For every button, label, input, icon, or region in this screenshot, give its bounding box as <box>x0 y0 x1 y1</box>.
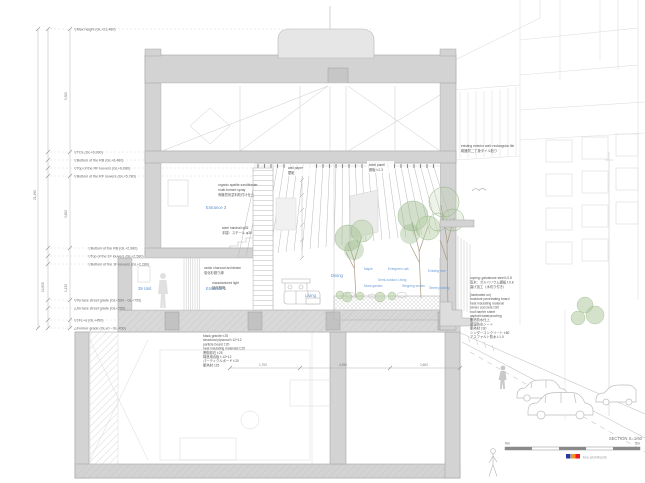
level-former-grade: △Former grade (GL±0 - GL-450) <box>74 327 126 331</box>
ann-louver-right-2: 鋼板 t:2.3 <box>369 167 383 172</box>
dim-total-height: 21,480 <box>33 190 37 200</box>
ann-coping-1: coping: galvalume steel t:0.8 <box>470 276 512 280</box>
background-buildings <box>455 0 645 420</box>
dim-bottom-1: 1,700 <box>259 363 267 367</box>
room-living: Living <box>305 293 317 298</box>
ann-coping-3: 曲げ加工（水切り付き） <box>470 284 506 289</box>
level-top-1f-louvers: ▽Top of the 1F louvers (GL+2,580) <box>88 255 144 259</box>
room-39unit: 39 Unit <box>138 286 152 291</box>
firm-logo <box>566 454 580 459</box>
dim-seg-mid: 3,600 <box>64 210 68 218</box>
ann-louver-left-1: wall paper <box>288 166 304 170</box>
room-entrance3: Entrance 3 <box>206 205 227 210</box>
level-bottom-2f-rb: ▽Bottom of the RB (GL+2,980) <box>88 247 137 251</box>
roof-slab <box>145 55 456 83</box>
garden-label-4: Moss garden <box>364 284 383 288</box>
ann-architrave-1: cedar charcoal architrave <box>204 266 241 270</box>
floor-slab-3f <box>145 151 456 163</box>
level-max-height: ▽Max height (GL+21,480) <box>74 28 116 32</box>
garden-label-3: Semi-outdoor Living <box>378 278 407 282</box>
level-bottom-rf-louvers: ▽Bottom of the RF louvers (GL+5,780) <box>74 175 136 179</box>
dim-left-total: 14,850 <box>41 282 45 292</box>
firm-credit: tna architects <box>583 455 607 460</box>
dim-bottom-2: 4,550 <box>339 363 347 367</box>
basement-level <box>75 332 460 478</box>
garden-label-7: Street planting <box>429 286 450 290</box>
building-section <box>118 6 604 332</box>
roof-vault <box>278 29 374 58</box>
level-tol: ▽TOL (GL+6,990) <box>74 151 103 155</box>
ann-floor-spec-8: 断熱材 t:25 <box>203 362 219 367</box>
level-1fl-alpha: ▽1FL+α (GL+450) <box>74 319 103 323</box>
ann-coping-2: 笠木：ガルバリウム鋼板 t:0.8 <box>470 280 514 285</box>
third-floor-room <box>161 83 440 151</box>
dim-seg-low: 1,130 <box>64 284 68 292</box>
ann-handrail-2: 手摺：スチール φ35 <box>222 230 252 235</box>
level-top-rf-louvers: ▽Top of the RF louvers (GL+6,080) <box>74 167 130 171</box>
roadside-bushes <box>571 297 604 325</box>
dim-bottom-3: 2,600 <box>420 363 428 367</box>
ann-architrave-2: 炭化杉廻り縁 <box>204 270 224 275</box>
bird-icon <box>472 189 486 191</box>
room-dining: Dining <box>331 273 344 278</box>
level-bottom-1f-louvers: ▽Bottom of the 1F louvers (GL+2,280) <box>88 263 149 267</box>
ann-light-1: manufactured light <box>212 281 239 285</box>
footer: SECTION S=1/60 0m 5m tna architects <box>505 436 643 460</box>
ann-wall-finish-1: organic apatite sandblaster <box>218 183 258 187</box>
street-section <box>456 331 645 477</box>
ann-louver-right-1: steel panel <box>369 163 385 167</box>
scale-bar <box>505 447 640 450</box>
car-right <box>596 385 636 405</box>
canopy-ledge <box>440 220 474 227</box>
level-terrace-grade-v: ▽Terrace street grade (GL+500 - GL+750) <box>74 299 141 303</box>
scale-five: 5m <box>635 442 640 446</box>
garden-label-5: Stepping stones <box>402 284 425 288</box>
furniture <box>282 279 320 304</box>
garden-label-2: Evergreen oak <box>388 267 409 271</box>
level-terrace-grade-a: △Terrace street grade (GL+750) <box>74 307 125 311</box>
garden-label-1: Maple <box>364 267 373 271</box>
bookshelf <box>253 168 273 310</box>
ann-light-2: 製作照明 <box>212 285 226 290</box>
pedestrian-outline <box>489 449 497 477</box>
ann-existing-wall-2: 磁器質二丁掛タイル貼り <box>461 148 497 153</box>
drawing-canvas: ▽Max height (GL+21,480) ▽TOL (GL+6,990) … <box>0 0 645 483</box>
ann-louver-left-2: 壁紙 <box>288 170 295 175</box>
dim-seg-top: 5,300 <box>64 92 68 100</box>
tower-window-grid <box>546 134 638 264</box>
scale-zero: 0m <box>505 442 510 446</box>
ann-wall-finish-3: 有機質系塗料吹付け仕上 <box>218 192 255 197</box>
section-label: SECTION S=1/60 <box>609 436 643 441</box>
ann-handrail-1: steel handrail φ35 <box>222 226 248 230</box>
level-bottom-rb: ▽Bottom of the RB (GL+6,480) <box>74 159 123 163</box>
ann-existing-wall-1: existing exterior wall: rectangular tile <box>461 144 514 148</box>
garden-label-6: Existing tree <box>428 269 446 273</box>
ann-wall-finish-2: multi-formed spray <box>218 188 246 192</box>
ann-roof-spec-11: アスファルト防水 t:1.0 <box>470 334 504 339</box>
